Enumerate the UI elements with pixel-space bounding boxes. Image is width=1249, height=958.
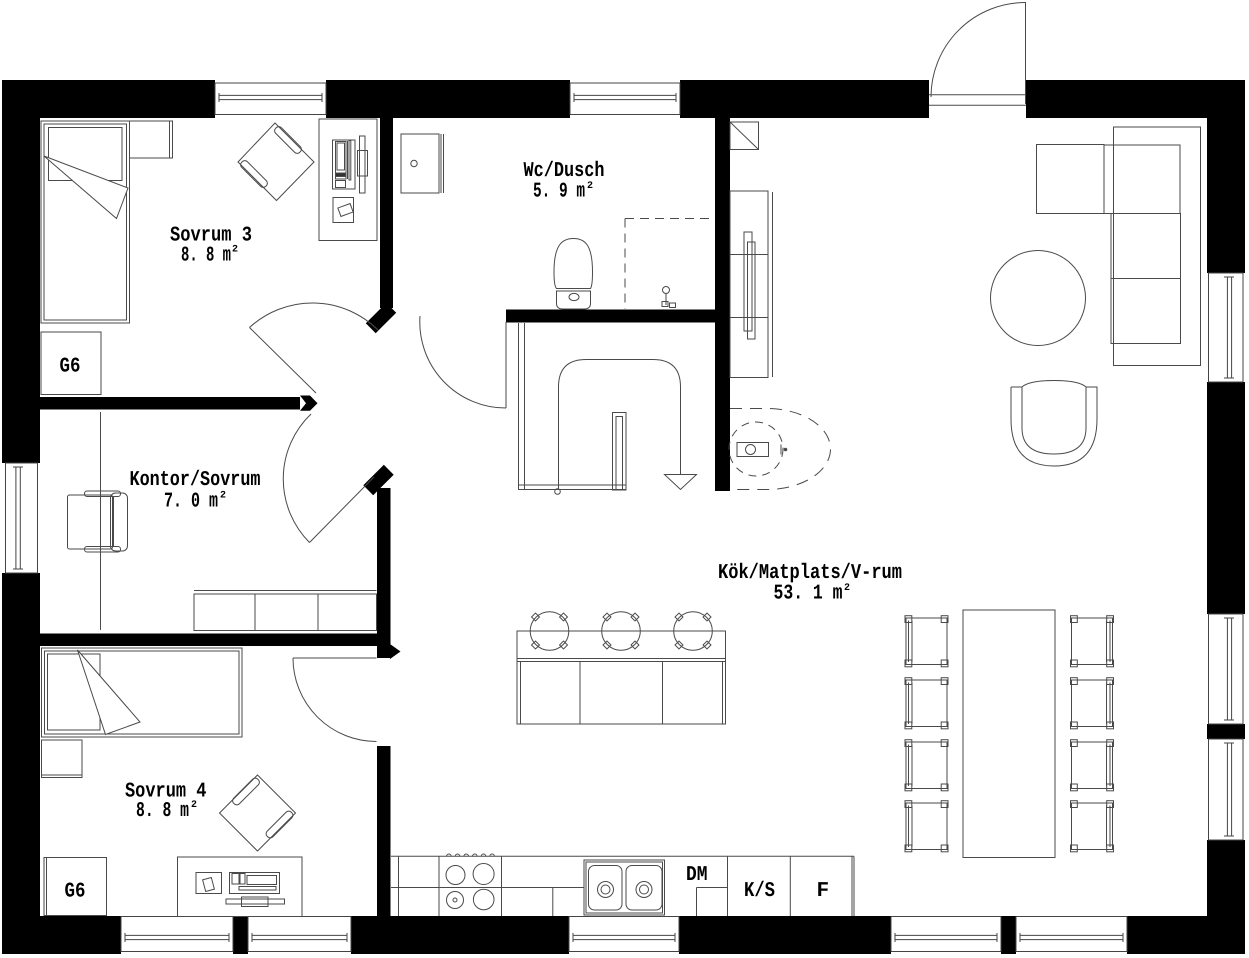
svg-text:G6: G6 [65, 881, 86, 904]
svg-text:K/S: K/S [744, 880, 775, 903]
svg-text:Kontor/Sovrum: Kontor/Sovrum [130, 469, 261, 492]
svg-text:7. 0 m: 7. 0 m [164, 491, 218, 514]
svg-text:G6: G6 [60, 356, 81, 379]
svg-text:DM: DM [686, 864, 708, 887]
svg-text:8. 8 m: 8. 8 m [136, 800, 189, 823]
svg-text:53. 1 m: 53. 1 m [774, 583, 843, 606]
svg-text:2: 2 [587, 181, 593, 192]
svg-text:2: 2 [220, 491, 226, 502]
svg-text:2: 2 [232, 245, 238, 256]
svg-text:8. 8 m: 8. 8 m [181, 245, 231, 268]
svg-text:5. 9 m: 5. 9 m [533, 181, 585, 204]
svg-text:2: 2 [844, 583, 850, 594]
svg-text:2: 2 [191, 800, 197, 811]
svg-text:F: F [817, 880, 830, 903]
